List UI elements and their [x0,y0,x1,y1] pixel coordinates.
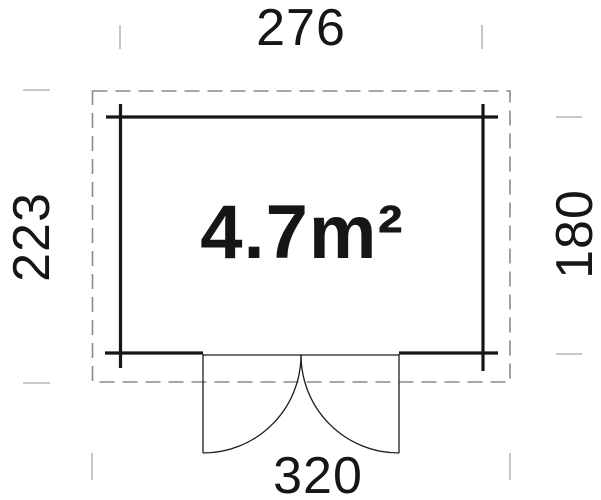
floor-plan: 276 223 180 320 4.7m² [0,0,601,500]
door-swing-arc-right [301,355,399,453]
floor-plan-svg: 276 223 180 320 4.7m² [0,0,601,500]
floor-area-label: 4.7m² [200,190,404,275]
dimension-top-label: 276 [256,0,346,57]
double-door-group [203,354,399,453]
dimension-right-label: 180 [546,189,601,279]
dimension-bottom-label: 320 [273,447,363,500]
dimension-left-label: 223 [3,192,61,282]
labels-group: 276 223 180 320 4.7m² [3,0,601,500]
door-swing-arc-left [203,355,301,453]
